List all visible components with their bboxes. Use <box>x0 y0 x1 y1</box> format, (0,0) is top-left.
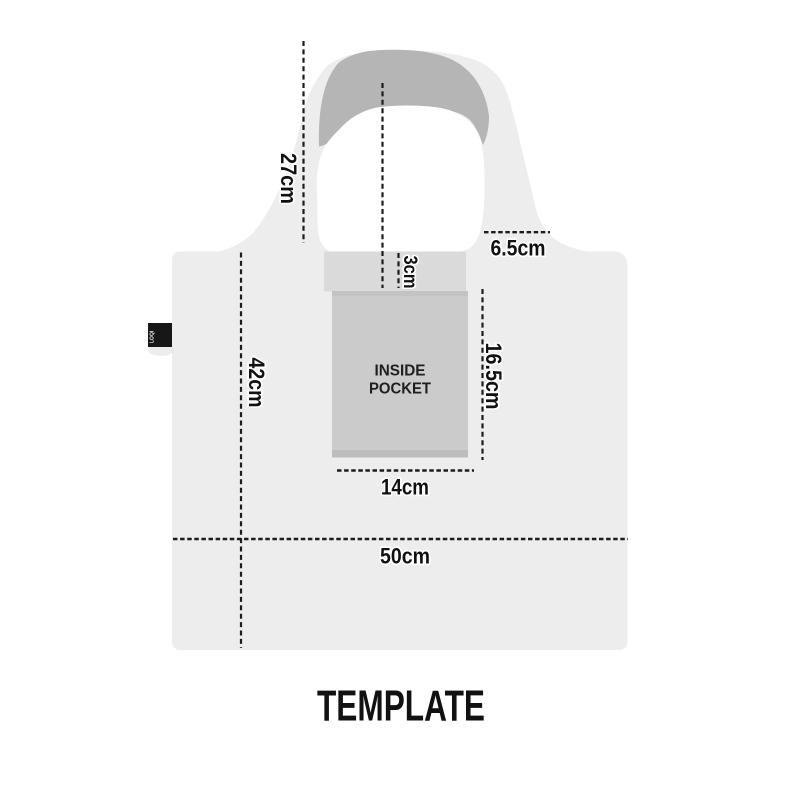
svg-text:POCKET: POCKET <box>369 381 431 398</box>
svg-text:42cm: 42cm <box>244 358 269 408</box>
svg-text:INSIDE: INSIDE <box>375 363 426 380</box>
svg-text:50cm: 50cm <box>380 544 430 569</box>
svg-text:27cm: 27cm <box>276 153 301 204</box>
svg-text:14cm: 14cm <box>381 475 429 500</box>
svg-text:3cm: 3cm <box>399 256 421 289</box>
svg-text:LOQI: LOQI <box>150 330 156 343</box>
svg-text:TEMPLATE: TEMPLATE <box>317 683 485 731</box>
svg-text:6.5cm: 6.5cm <box>491 236 546 261</box>
svg-text:16.5cm: 16.5cm <box>481 343 506 410</box>
